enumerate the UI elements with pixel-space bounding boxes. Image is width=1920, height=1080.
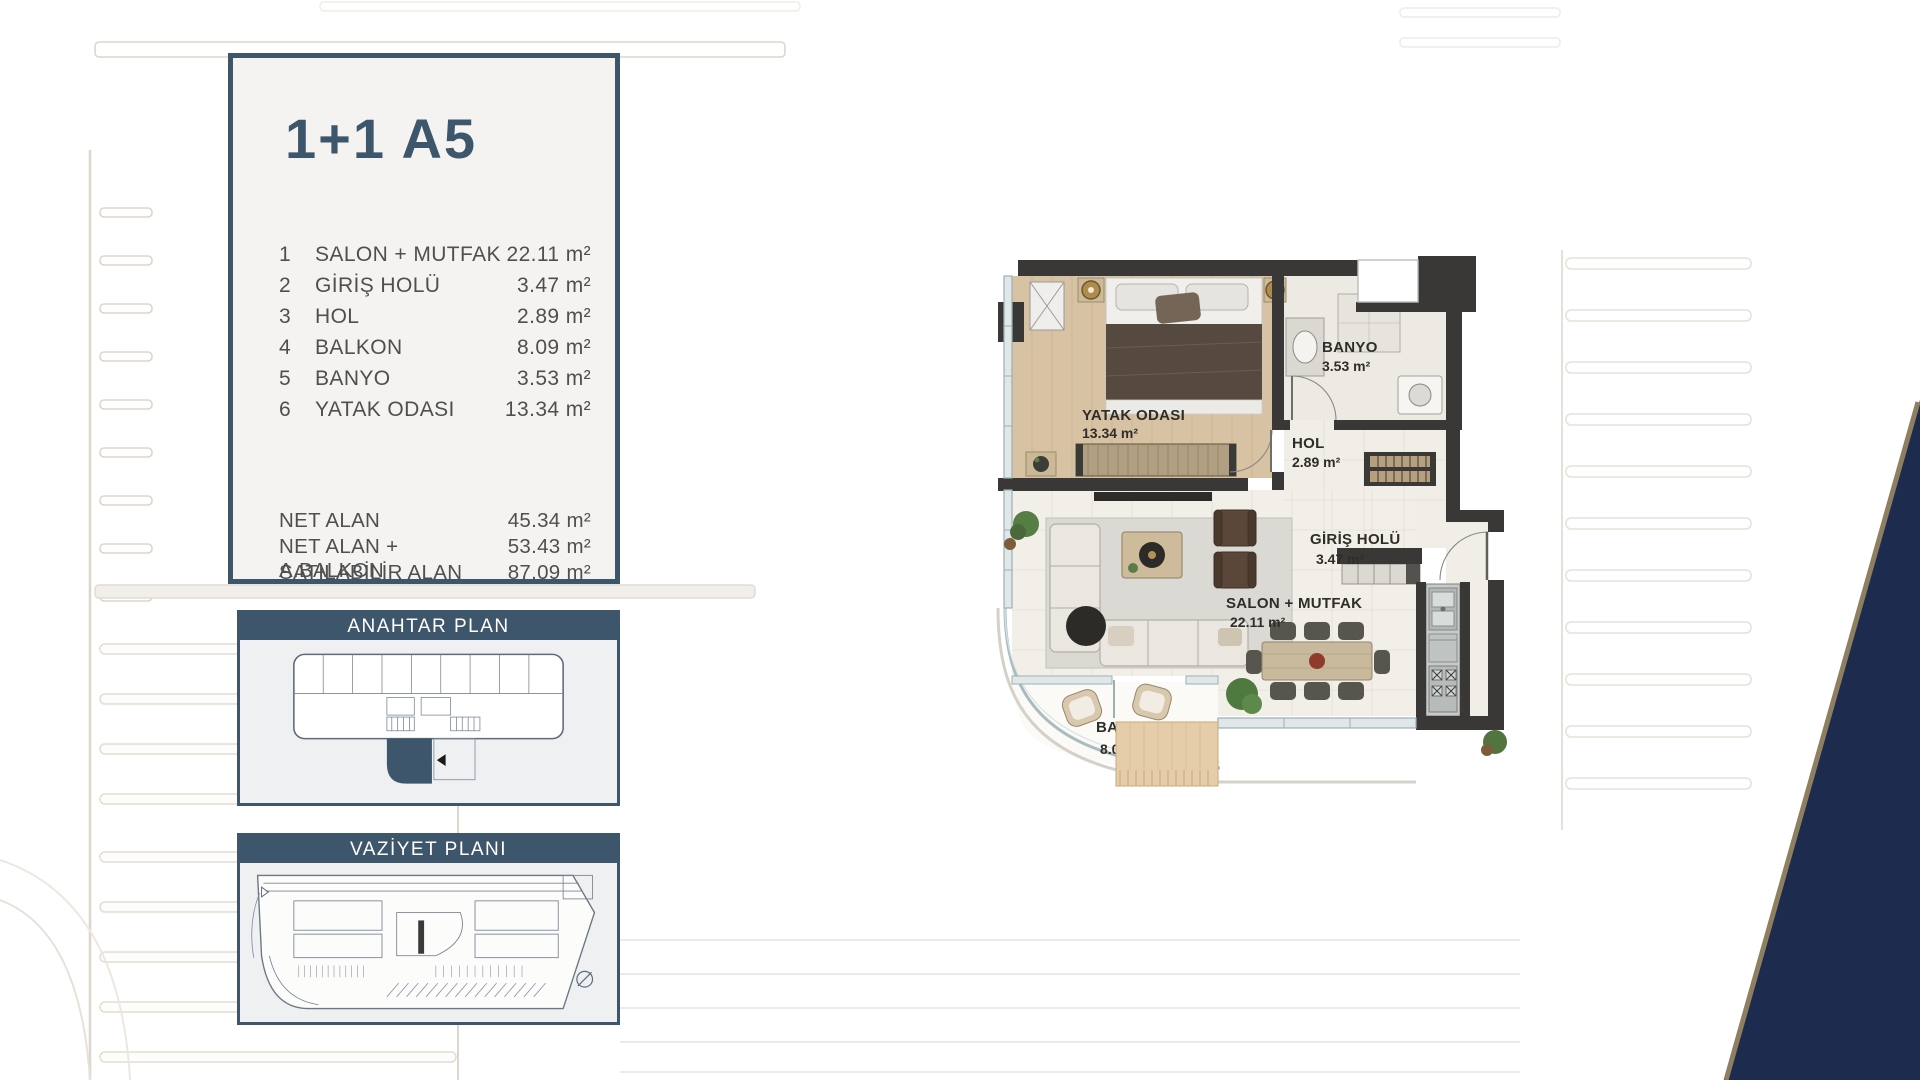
svg-text:13.34 m²: 13.34 m² <box>1082 425 1138 441</box>
floor-plan-canvas: YATAK ODASI 13.34 m² BANYO 3.53 m² HOL 2… <box>990 230 1590 790</box>
floor-plan: YATAK ODASI 13.34 m² BANYO 3.53 m² HOL 2… <box>990 230 1590 790</box>
page-title: 1+1 A5 <box>285 106 477 171</box>
exterior-notch <box>1358 260 1418 302</box>
svg-text:22.11 m²: 22.11 m² <box>1230 614 1286 630</box>
room-list-item: 6 YATAK ODASI 13.34 m² <box>233 398 615 429</box>
site-plan-drawing <box>240 863 617 1019</box>
room-list-item: 1 SALON + MUTFAK 22.11 m² <box>233 243 615 274</box>
highlighted-unit <box>387 739 432 784</box>
room-list-item: 4 BALKON 8.09 m² <box>233 336 615 367</box>
brochure-page: 1+1 A5 1 SALON + MUTFAK 22.11 m² 2 GİRİŞ… <box>0 0 1920 1080</box>
total-row: SATILABİLİR ALAN 87.09 m² <box>233 561 615 587</box>
room-list-item: 3 HOL 2.89 m² <box>233 305 615 336</box>
svg-text:3.47 m²: 3.47 m² <box>1316 551 1365 567</box>
unit-marker-icon <box>437 754 446 766</box>
bedroom-label: YATAK ODASI <box>1082 407 1185 424</box>
area-totals: NET ALAN 45.34 m² NET ALAN + A.BALKON 53… <box>233 509 615 587</box>
bathroom-label: BANYO <box>1322 339 1378 356</box>
hall-label: HOL <box>1292 435 1325 452</box>
room-list-item: 5 BANYO 3.53 m² <box>233 367 615 398</box>
hall-cabinet <box>1364 452 1436 486</box>
unit-info-panel: 1+1 A5 1 SALON + MUTFAK 22.11 m² 2 GİRİŞ… <box>228 53 620 584</box>
room-list: 1 SALON + MUTFAK 22.11 m² 2 GİRİŞ HOLÜ 3… <box>233 243 615 429</box>
key-plan-drawing <box>240 640 617 800</box>
entrance-label: GİRİŞ HOLÜ <box>1310 531 1401 548</box>
svg-text:2.89 m²: 2.89 m² <box>1292 454 1341 470</box>
svg-text:3.53 m²: 3.53 m² <box>1322 358 1371 374</box>
key-plan-title: ANAHTAR PLAN <box>240 613 617 640</box>
site-plan-title: VAZİYET PLANI <box>240 836 617 863</box>
room-list-item: 2 GİRİŞ HOLÜ 3.47 m² <box>233 274 615 305</box>
key-plan-box: ANAHTAR PLAN <box>237 610 620 806</box>
compass-icon <box>577 971 593 987</box>
living-label: SALON + MUTFAK <box>1226 595 1362 612</box>
site-plan-box: VAZİYET PLANI <box>237 833 620 1025</box>
balcony-drape <box>1116 722 1218 786</box>
total-row: NET ALAN 45.34 m² <box>233 509 615 535</box>
total-row: NET ALAN + A.BALKON 53.43 m² <box>233 535 615 561</box>
